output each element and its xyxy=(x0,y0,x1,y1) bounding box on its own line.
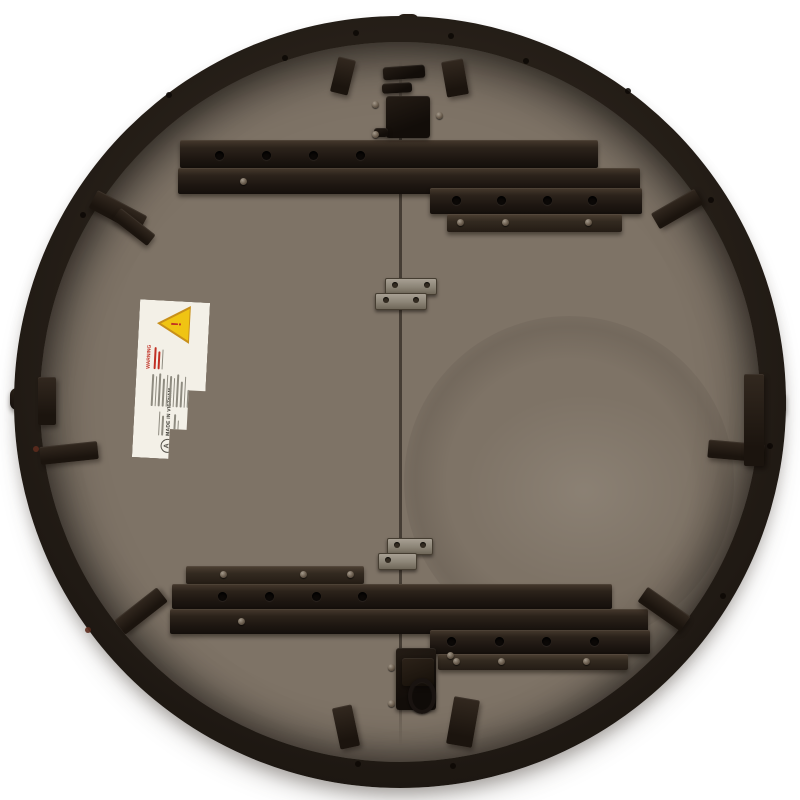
bolt-hole xyxy=(309,151,318,160)
batten-bottom-right xyxy=(430,630,650,654)
rim-screw xyxy=(33,446,39,452)
screw xyxy=(220,571,227,578)
screw xyxy=(585,219,592,226)
bolt-hole xyxy=(358,592,367,601)
screw xyxy=(447,652,454,659)
batten-top-plate xyxy=(447,214,622,232)
wood-sheen-highlight xyxy=(444,376,724,606)
rim-screw xyxy=(85,627,91,633)
warning-heading: WARNING xyxy=(146,345,153,369)
screw xyxy=(240,178,247,185)
rim-screw xyxy=(767,443,773,449)
rim-screw xyxy=(448,33,454,39)
bolt-hole xyxy=(265,592,274,601)
screw xyxy=(388,700,395,707)
rim-cleat xyxy=(744,374,764,466)
screw xyxy=(502,219,509,226)
bolt-hole xyxy=(218,592,227,601)
bolt-hole xyxy=(542,637,551,646)
ring-pull xyxy=(408,678,436,714)
bolt-hole xyxy=(543,196,552,205)
rim-screw xyxy=(353,30,359,36)
batten-bottom-plate xyxy=(186,566,364,584)
rim-screw xyxy=(720,593,726,599)
screw xyxy=(583,658,590,665)
bolt-hole xyxy=(588,196,597,205)
screw xyxy=(498,658,505,665)
batten-bottom-plate-right xyxy=(438,654,628,670)
rim-screw xyxy=(355,761,361,767)
rim-screw xyxy=(523,58,529,64)
batten-bottom-left xyxy=(172,584,612,609)
rim-screw xyxy=(282,55,288,61)
warning-triangle-icon: ! xyxy=(155,304,193,344)
rim-screw xyxy=(708,197,714,203)
batten-top-left xyxy=(180,140,598,168)
screw xyxy=(453,658,460,665)
bolt-hole xyxy=(262,151,271,160)
rim-cleat xyxy=(38,377,56,425)
product-photo: A MADE IN VIETNAM WARNING xyxy=(0,0,800,800)
bolt-hole xyxy=(215,151,224,160)
label-warning-block: WARNING xyxy=(142,344,164,369)
screw xyxy=(372,131,379,138)
exclamation-mark: ! xyxy=(168,305,184,344)
table-rim: A MADE IN VIETNAM WARNING xyxy=(14,16,786,788)
bolt-hole xyxy=(356,151,365,160)
rim-screw xyxy=(80,212,86,218)
bolt-hole xyxy=(497,196,506,205)
bolt-hole xyxy=(452,196,461,205)
screw xyxy=(388,664,395,671)
rim-screw xyxy=(166,92,172,98)
batten-top-right xyxy=(430,188,642,214)
screw xyxy=(436,112,443,119)
bolt-hole xyxy=(447,637,456,646)
rim-screw xyxy=(625,88,631,94)
bolt-hole xyxy=(312,592,321,601)
screw xyxy=(457,219,464,226)
screw xyxy=(300,571,307,578)
bolt-hole xyxy=(495,637,504,646)
rim-screw xyxy=(450,763,456,769)
bolt-hole xyxy=(590,637,599,646)
screw xyxy=(347,571,354,578)
screw xyxy=(238,618,245,625)
screw xyxy=(372,101,379,108)
